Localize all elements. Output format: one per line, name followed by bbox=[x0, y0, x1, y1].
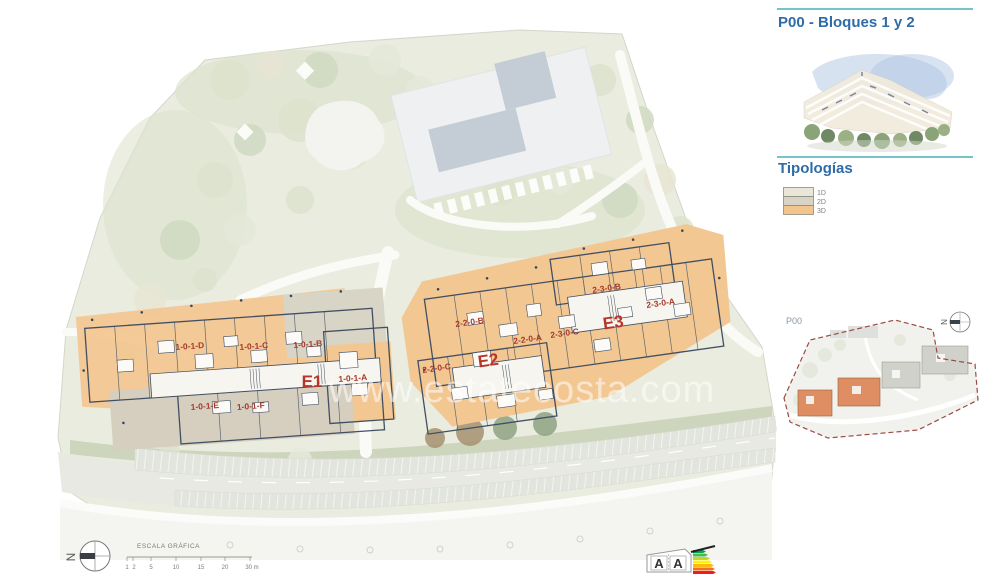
unit-label: 1-0-1-E bbox=[190, 400, 219, 412]
legend-swatch-3d bbox=[784, 206, 814, 215]
unit-label: 1-0-1-D bbox=[175, 340, 204, 352]
legend-label-3d: 3D bbox=[817, 208, 826, 215]
svg-text:15: 15 bbox=[198, 565, 205, 571]
energy-letter-a1: A bbox=[654, 556, 664, 571]
legend-swatch-1d bbox=[784, 188, 814, 197]
energy-letter-a2: A bbox=[673, 556, 683, 571]
unit-label: 1-0-1-F bbox=[237, 400, 266, 412]
legend-label-2d: 2D bbox=[817, 199, 826, 206]
typologies-heading: Tipologías bbox=[778, 160, 853, 177]
divider-middle bbox=[777, 156, 973, 158]
divider-top bbox=[777, 8, 973, 10]
info-panel: P00 - Bloques 1 y 2 Tipologías bbox=[770, 0, 1000, 578]
minimap-label: P00 bbox=[786, 316, 802, 326]
core-label-e3: E3 bbox=[602, 312, 625, 334]
scale-bar-title: ESCALA GRÁFICA bbox=[137, 541, 200, 550]
svg-text:30 m: 30 m bbox=[245, 565, 258, 571]
north-letter: N bbox=[64, 553, 78, 562]
svg-text:10: 10 bbox=[173, 565, 180, 571]
typology-legend: 1D 2D 3D bbox=[783, 187, 903, 221]
svg-text:5: 5 bbox=[149, 565, 153, 571]
unit-label: 1-0-1-B bbox=[293, 338, 322, 350]
minimap-north-arrow: N bbox=[940, 312, 970, 332]
legend-label-1d: 1D bbox=[817, 190, 826, 197]
scale-tick-labels: 1 2 5 10 15 20 30 m bbox=[125, 565, 258, 571]
building-rendering bbox=[792, 42, 962, 154]
legend-swatch-2d bbox=[784, 197, 814, 206]
svg-text:20: 20 bbox=[222, 565, 229, 571]
minimap-north-letter: N bbox=[940, 319, 949, 325]
watermark: www.estatecosta.com bbox=[328, 369, 715, 411]
unit-label: 1-0-1-C bbox=[239, 340, 268, 352]
core-label-e1: E1 bbox=[302, 372, 323, 391]
svg-text:2: 2 bbox=[132, 565, 136, 571]
svg-text:1: 1 bbox=[125, 565, 129, 571]
page: { "panel": { "title": "P00 - Bloques 1 y… bbox=[0, 0, 1000, 578]
panel-title: P00 - Bloques 1 y 2 bbox=[778, 14, 915, 31]
overview-minimap: P00 N bbox=[770, 300, 998, 460]
